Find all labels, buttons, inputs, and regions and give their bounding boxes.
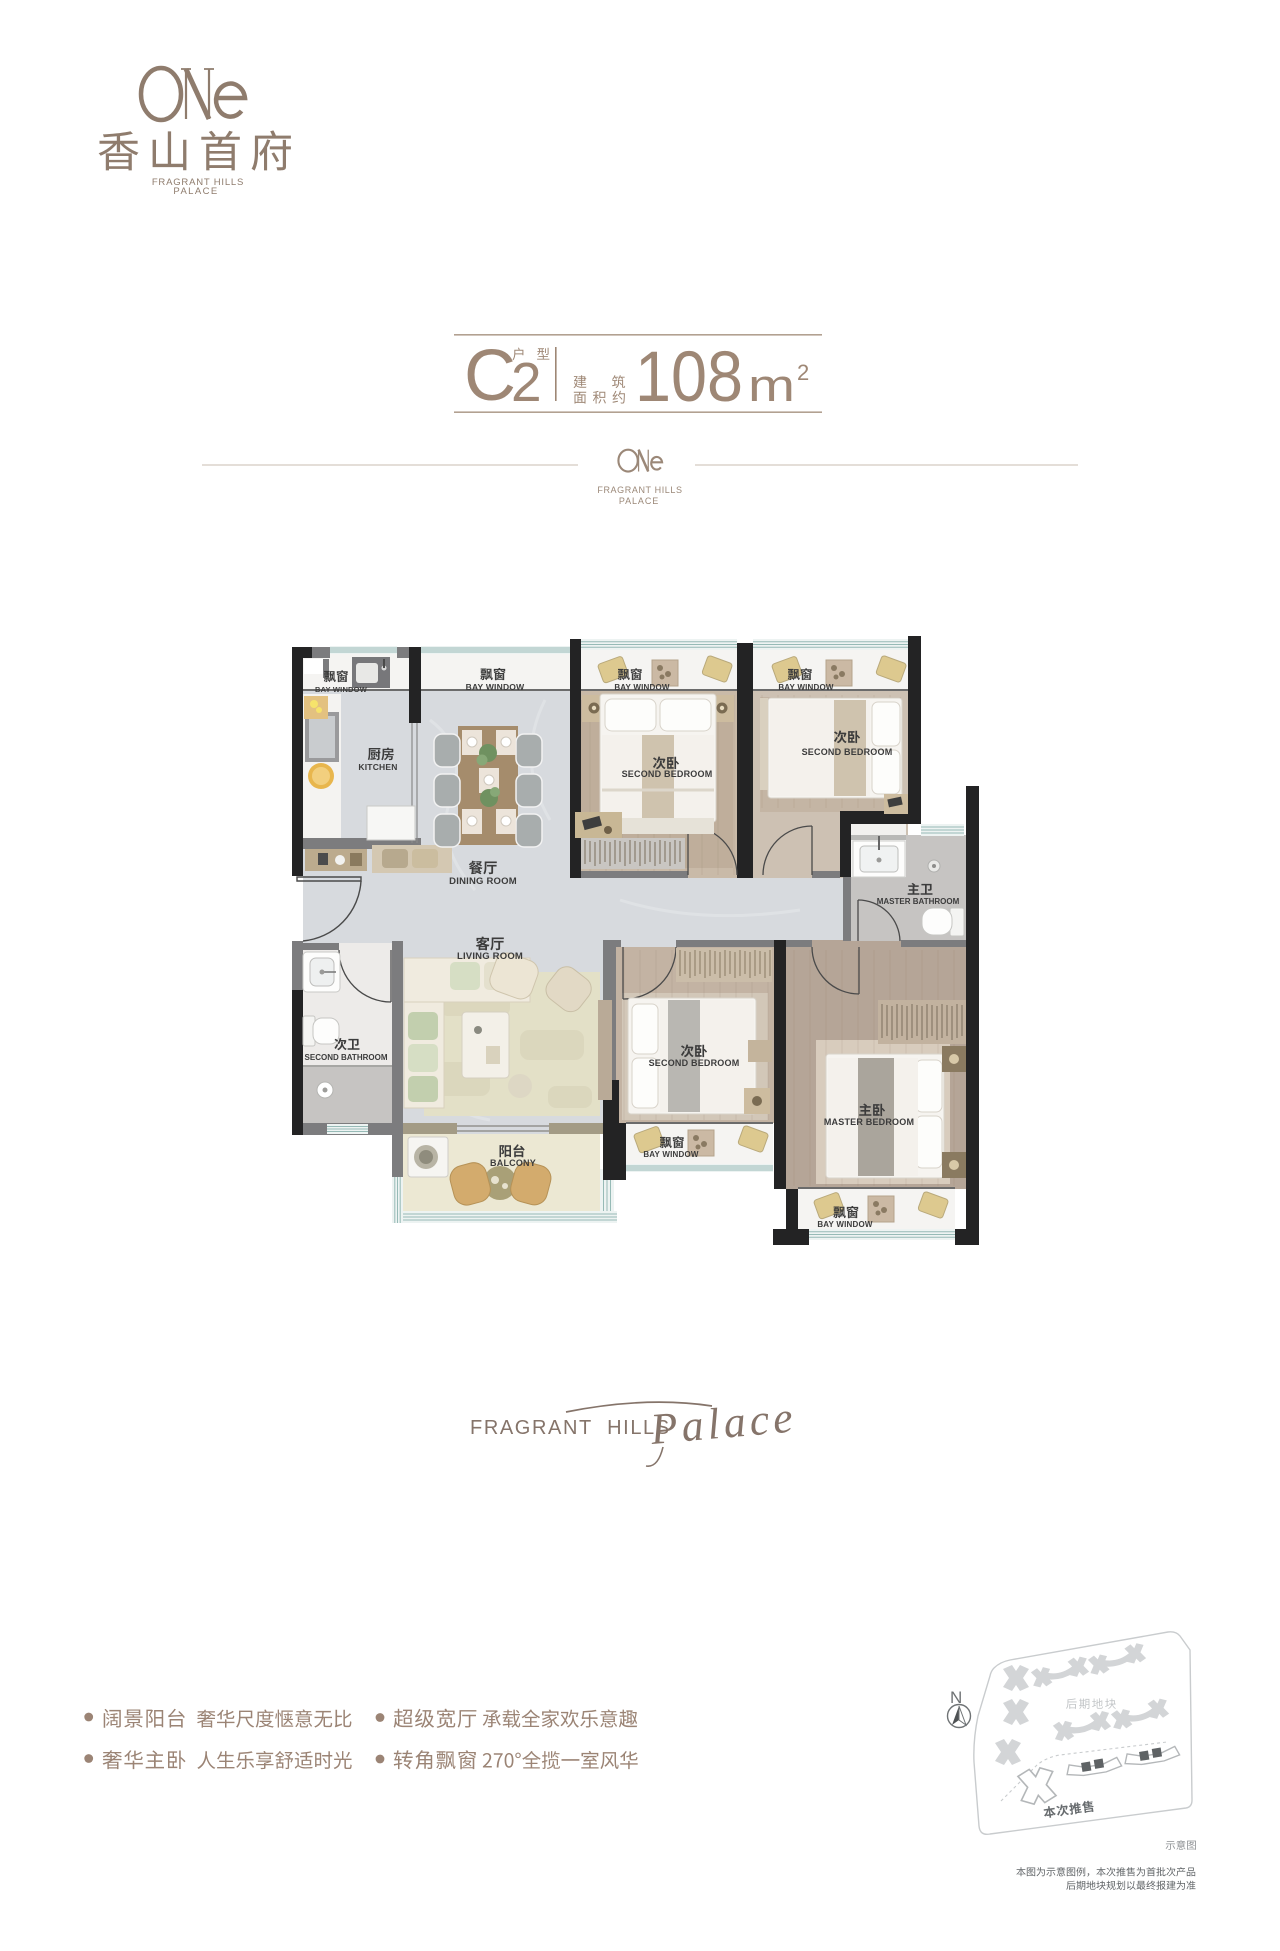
svg-text:MASTER BEDROOM: MASTER BEDROOM <box>824 1117 914 1127</box>
svg-text:PALACE: PALACE <box>173 186 218 197</box>
svg-text:BAY WINDOW: BAY WINDOW <box>643 1150 699 1159</box>
svg-text:BALCONY: BALCONY <box>490 1158 536 1168</box>
svg-text:SECOND BEDROOM: SECOND BEDROOM <box>649 1058 740 1068</box>
svg-text:PALACE: PALACE <box>619 496 659 506</box>
svg-text:BAY WINDOW: BAY WINDOW <box>817 1220 873 1229</box>
svg-text:2: 2 <box>797 360 809 385</box>
svg-text:LIVING ROOM: LIVING ROOM <box>457 951 523 962</box>
svg-text:BAY WINDOW: BAY WINDOW <box>778 683 834 692</box>
svg-text:MASTER BATHROOM: MASTER BATHROOM <box>877 897 960 906</box>
svg-text:SECOND BATHROOM: SECOND BATHROOM <box>305 1053 388 1062</box>
svg-text:2: 2 <box>511 351 542 413</box>
svg-text:FRAGRANT HILLS: FRAGRANT HILLS <box>470 1417 671 1439</box>
svg-text:KITCHEN: KITCHEN <box>358 762 397 772</box>
svg-text:SECOND BEDROOM: SECOND BEDROOM <box>622 769 713 779</box>
svg-text:BAY WINDOW: BAY WINDOW <box>466 682 525 692</box>
svg-text:C: C <box>464 336 516 416</box>
svg-text:BAY WINDOW: BAY WINDOW <box>315 685 368 694</box>
svg-text:SECOND BEDROOM: SECOND BEDROOM <box>802 747 893 757</box>
svg-text:108: 108 <box>635 338 743 417</box>
svg-text:FRAGRANT HILLS: FRAGRANT HILLS <box>597 485 682 495</box>
svg-text:BAY WINDOW: BAY WINDOW <box>614 683 670 692</box>
svg-text:m: m <box>748 360 795 411</box>
svg-text:DINING ROOM: DINING ROOM <box>449 876 517 887</box>
